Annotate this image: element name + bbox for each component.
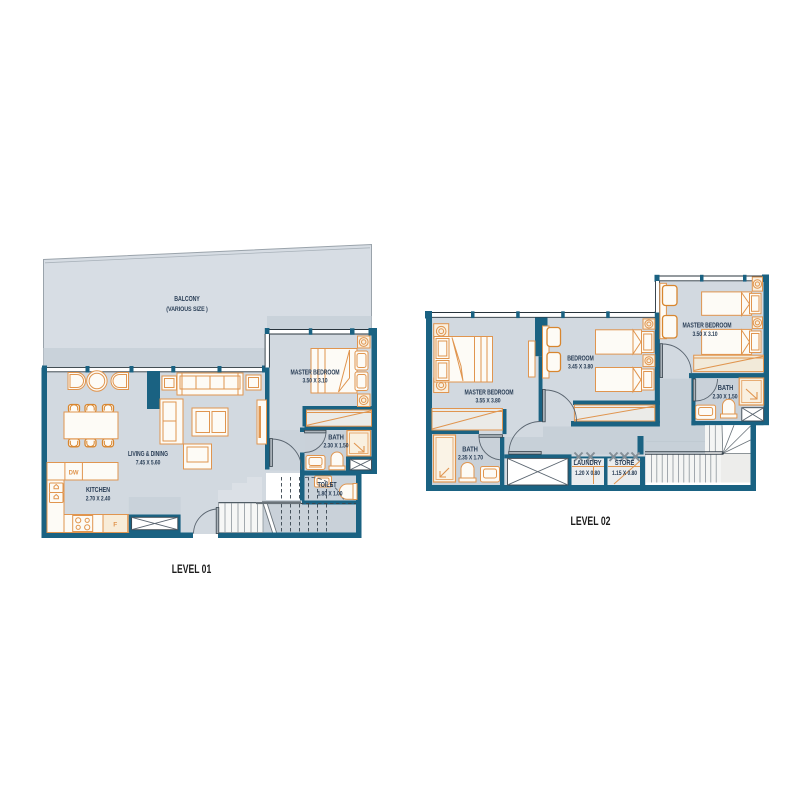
svg-text:1.15 X 0.80: 1.15 X 0.80 (612, 470, 637, 477)
svg-text:LAUNDRY: LAUNDRY (574, 460, 602, 467)
svg-text:STORE: STORE (615, 460, 635, 467)
svg-text:1.80 X 1.00: 1.80 X 1.00 (318, 491, 343, 498)
svg-text:KITCHEN: KITCHEN (86, 487, 110, 494)
svg-text:2.70 X 2.40: 2.70 X 2.40 (86, 496, 111, 503)
svg-text:2.30 X 1.50: 2.30 X 1.50 (713, 394, 738, 401)
svg-text:7.45 X 5.60: 7.45 X 5.60 (136, 460, 161, 467)
svg-text:BEDROOM: BEDROOM (567, 356, 594, 363)
svg-text:3.50 X 3.10: 3.50 X 3.10 (693, 331, 718, 338)
svg-text:TOILET: TOILET (318, 482, 338, 489)
svg-text:3.55 X 3.80: 3.55 X 3.80 (476, 398, 501, 405)
svg-text:3.50 X 3.10: 3.50 X 3.10 (303, 378, 328, 385)
svg-text:2.35 X 1.70: 2.35 X 1.70 (458, 455, 483, 462)
svg-text:LIVING & DINING: LIVING & DINING (128, 451, 168, 458)
svg-text:LEVEL 01: LEVEL 01 (172, 562, 212, 576)
svg-text:MASTER BEDROOM: MASTER BEDROOM (465, 390, 514, 397)
svg-text:BATH: BATH (718, 385, 734, 392)
svg-text:1.20 X 0.80: 1.20 X 0.80 (575, 470, 600, 477)
svg-text:F: F (113, 522, 117, 529)
svg-text:LEVEL 02: LEVEL 02 (571, 514, 611, 528)
svg-text:BATH: BATH (328, 435, 344, 442)
svg-text:3.45 X 3.80: 3.45 X 3.80 (568, 364, 593, 371)
svg-text:MASTER BEDROOM: MASTER BEDROOM (291, 370, 340, 377)
svg-text:BALCONY: BALCONY (174, 296, 200, 303)
svg-text:MASTER BEDROOM: MASTER BEDROOM (683, 323, 732, 330)
svg-text:BATH: BATH (462, 447, 478, 454)
svg-text:(VARIOUS SIZE ): (VARIOUS SIZE ) (166, 306, 208, 313)
svg-text:DW: DW (69, 471, 79, 477)
svg-text:2.30 X 1.50: 2.30 X 1.50 (324, 443, 349, 450)
